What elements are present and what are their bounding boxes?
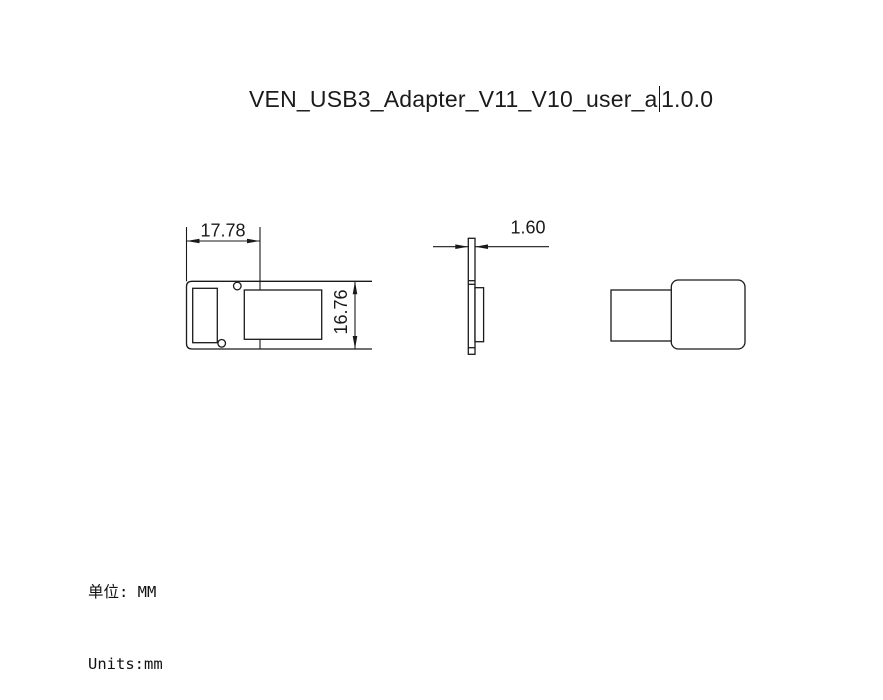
arrowhead-right-in — [455, 244, 468, 249]
units-note: 单位: MM Units:mm — [88, 532, 163, 700]
arrowhead-left-in — [475, 244, 488, 249]
arrowhead-right — [247, 239, 260, 244]
adapter-housing-rect — [671, 280, 745, 349]
component-rect-top-view — [244, 290, 321, 339]
top-view: 17.78 16.76 — [187, 221, 373, 350]
pcb-edge-rect — [468, 238, 475, 354]
arrowhead-down — [353, 336, 358, 349]
arrowhead-up — [353, 281, 358, 294]
side-view: 1.60 — [433, 218, 549, 355]
thickness-dimension — [433, 244, 549, 249]
drawing-page: { "title": { "text_before_caret": "VEN_U… — [0, 0, 883, 659]
height-dim-label: 16.76 — [331, 289, 351, 334]
height-dimension — [353, 281, 358, 349]
thickness-dim-label: 1.60 — [510, 218, 545, 238]
end-view — [611, 280, 745, 349]
plug-shell-rect — [611, 290, 672, 341]
arrowhead-left — [187, 239, 200, 244]
units-line-en: Units:mm — [88, 652, 163, 676]
units-line-cn: 单位: MM — [88, 580, 163, 604]
connector-opening-rect — [193, 288, 218, 342]
component-rect-side-view — [475, 288, 484, 342]
hole-top — [234, 282, 242, 290]
width-dim-label: 17.78 — [200, 221, 245, 241]
hole-bottom — [218, 340, 226, 348]
